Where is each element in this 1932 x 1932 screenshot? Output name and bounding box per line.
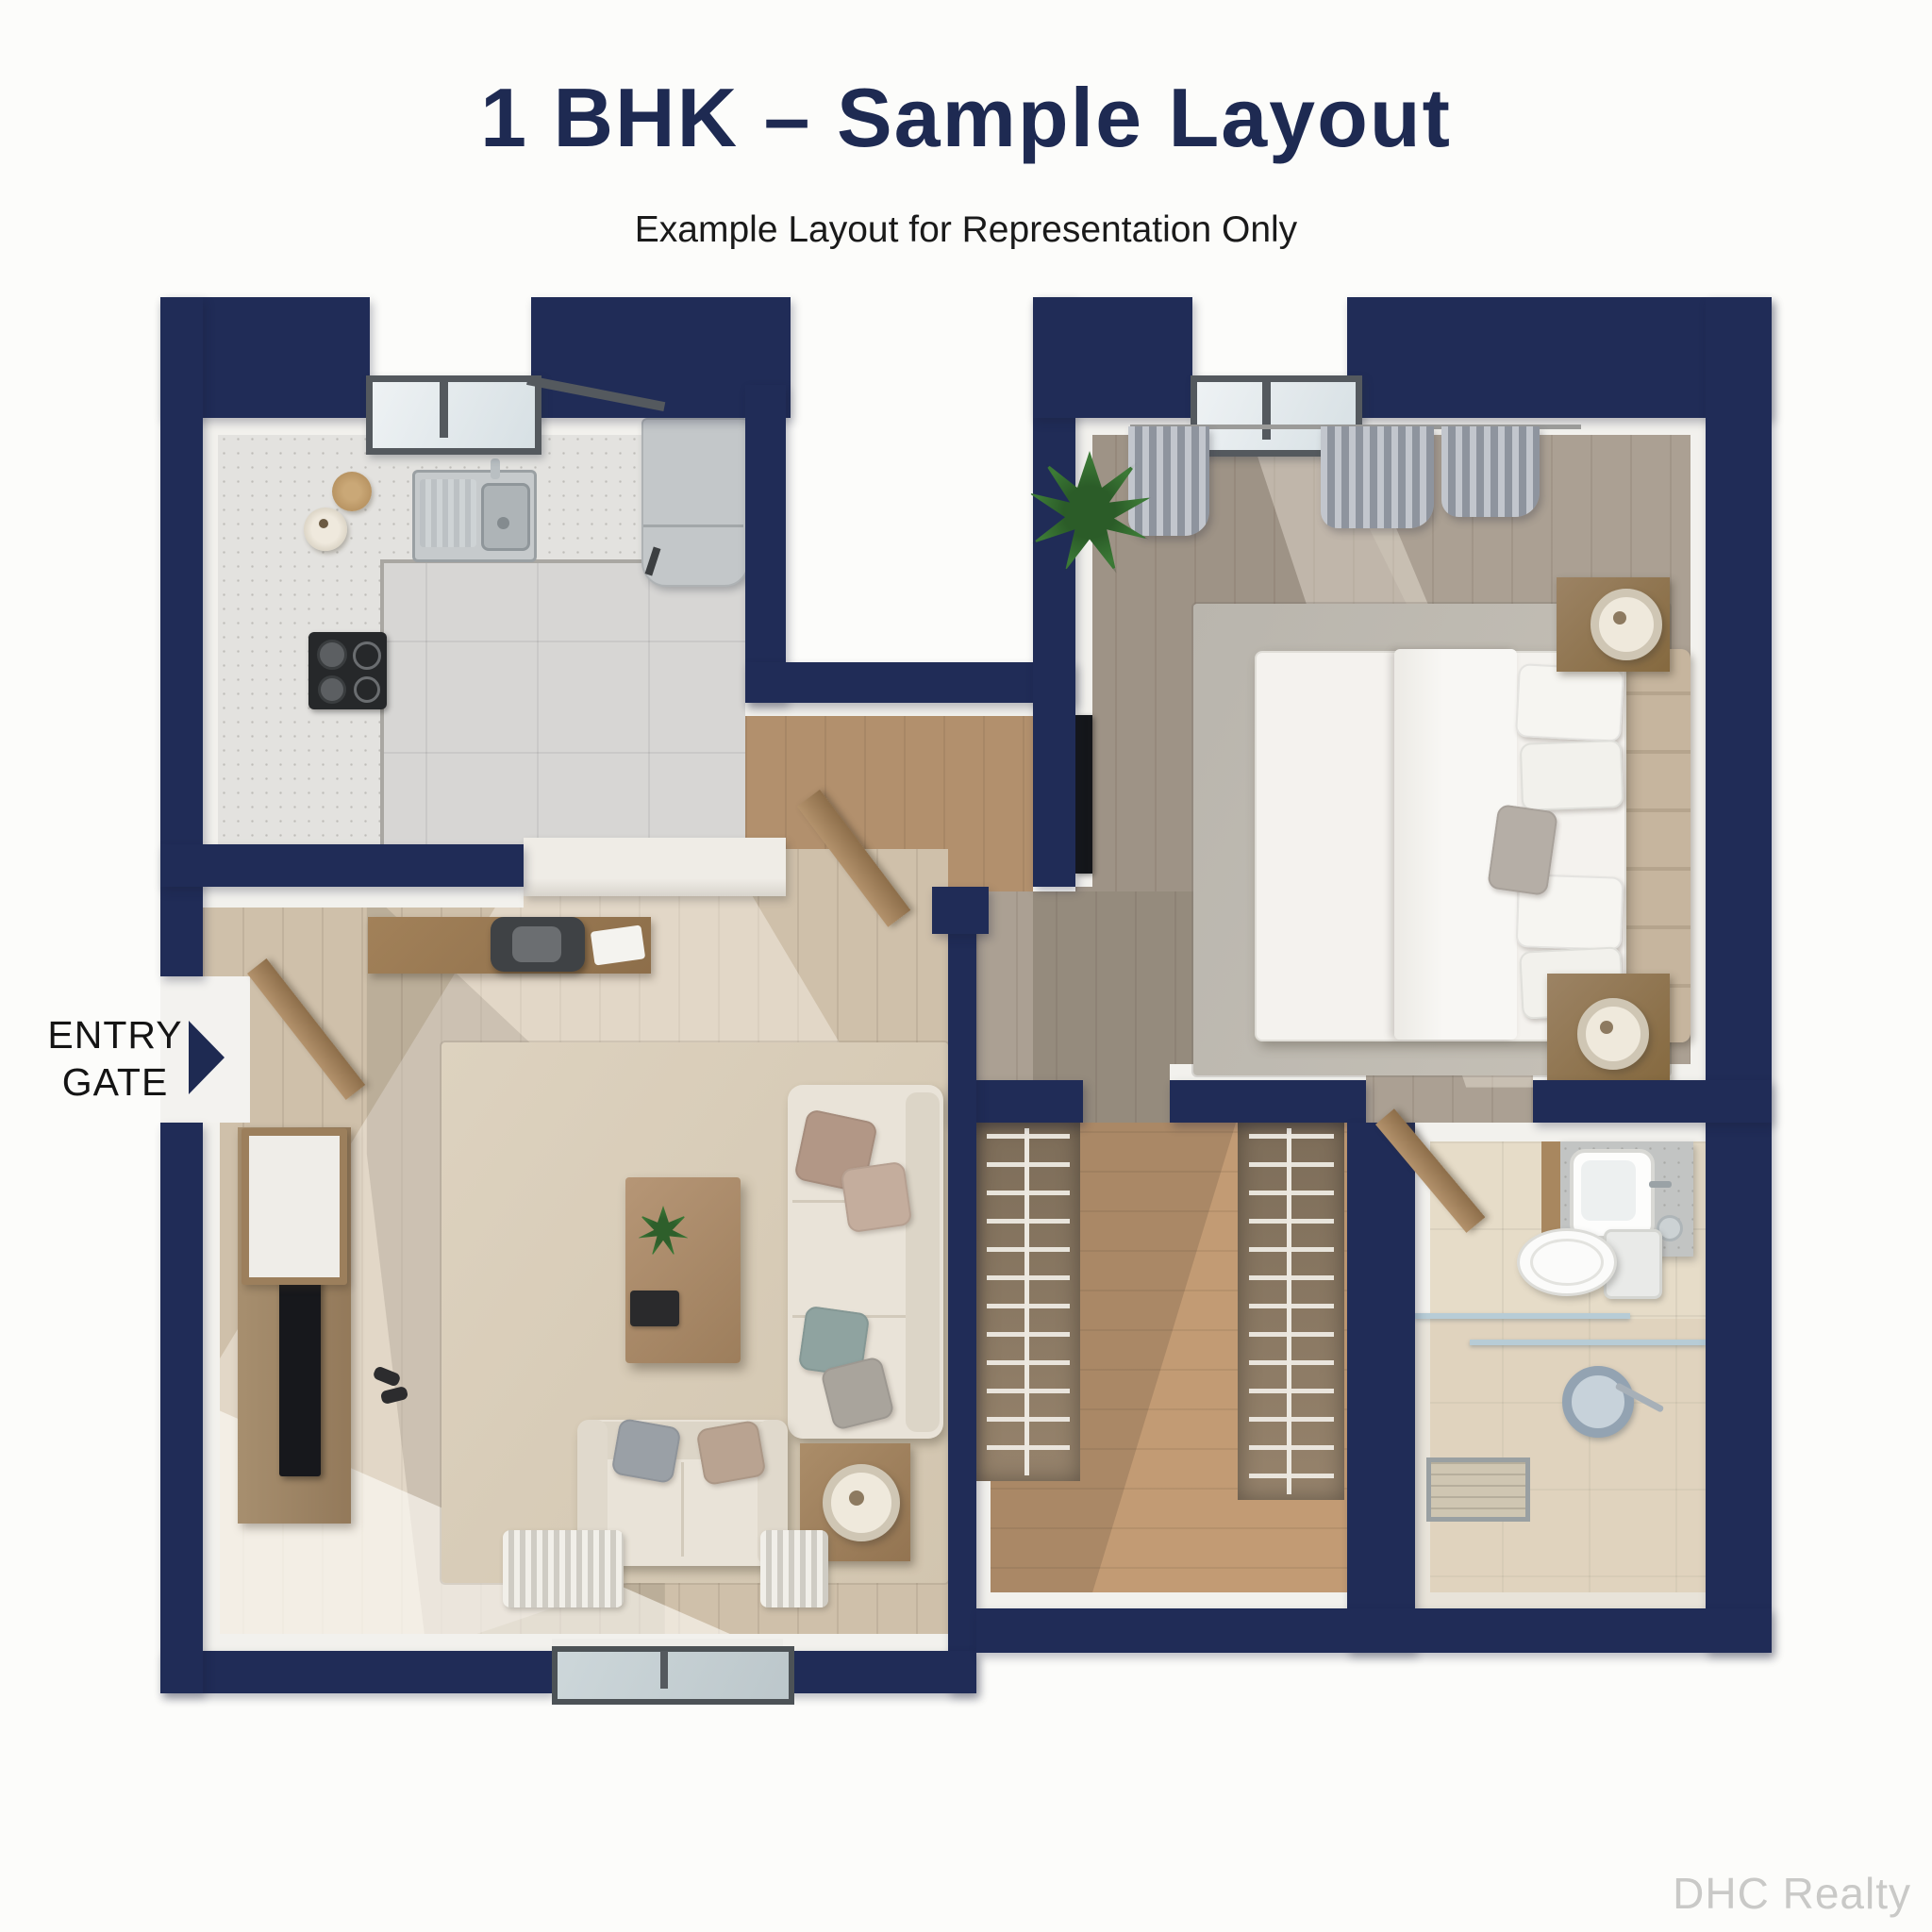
- wall: [160, 844, 524, 887]
- breakfast-counter: [524, 838, 786, 896]
- bed-pillow: [1515, 663, 1624, 742]
- table-tray: [630, 1291, 679, 1326]
- wall: [160, 1123, 203, 1693]
- watermark: DHC Realty: [1673, 1868, 1911, 1919]
- storage-jar: [304, 508, 347, 551]
- desk-paper: [591, 924, 645, 965]
- curtain-stack: [760, 1530, 828, 1607]
- nightstand-lamp: [1577, 998, 1649, 1070]
- toilet-seat-line: [1530, 1239, 1604, 1286]
- lamp-center-icon: [849, 1491, 864, 1506]
- wall-face: [1415, 1123, 1706, 1141]
- refrigerator: [641, 418, 749, 587]
- wardrobe-right-hangers: [1249, 1134, 1334, 1489]
- sofa-pillow: [610, 1418, 681, 1485]
- sink-faucet-icon: [491, 458, 500, 479]
- jar-lid-dot-icon: [319, 519, 328, 528]
- bedroom-curtain: [1128, 426, 1209, 536]
- window-mullion: [1262, 379, 1271, 440]
- bath-faucet-icon: [1649, 1181, 1672, 1188]
- wall-face: [203, 418, 218, 849]
- curtain-stack: [503, 1530, 624, 1607]
- sofa-pillow: [695, 1420, 766, 1487]
- entry-gate-label: ENTRY GATE: [43, 1011, 187, 1106]
- refrigerator-door-line: [643, 525, 743, 527]
- nightstand-lamp: [1591, 589, 1662, 660]
- desk-chair-seat: [512, 926, 561, 962]
- wall: [1706, 297, 1772, 1653]
- lamp-center-icon: [1600, 1021, 1613, 1034]
- wall-face: [745, 703, 1033, 716]
- wall: [976, 1608, 1772, 1653]
- wall-face: [976, 1592, 1373, 1608]
- bed-accent-pillow: [1487, 804, 1558, 896]
- wall: [1533, 1080, 1772, 1123]
- page-subtitle: Example Layout for Representation Only: [0, 209, 1932, 251]
- sofa-seam: [681, 1462, 684, 1557]
- wall: [932, 887, 989, 934]
- sink-drain-icon: [497, 517, 509, 529]
- tv-screen: [279, 1255, 321, 1476]
- coffee-table: [625, 1177, 741, 1363]
- sink-drainboard: [420, 479, 476, 547]
- wall-face: [203, 887, 524, 908]
- wall: [1347, 1123, 1415, 1653]
- wall: [1170, 1080, 1366, 1123]
- bedroom-curtain: [1441, 426, 1540, 517]
- kitchen-window: [366, 375, 541, 455]
- wall: [160, 1651, 552, 1693]
- burner-ring-icon: [354, 676, 380, 703]
- wall: [745, 385, 786, 703]
- burner-ring-icon: [353, 641, 381, 670]
- shoe-cabinet: [241, 1128, 347, 1285]
- living-window: [552, 1646, 794, 1705]
- wall-face: [1690, 418, 1706, 1123]
- hanger-rail-icon: [1024, 1128, 1029, 1475]
- entry-arrow-icon: [189, 1021, 225, 1094]
- bedroom-tv: [1075, 715, 1092, 874]
- hanger-rail-icon: [1287, 1128, 1291, 1494]
- wall: [1033, 297, 1192, 418]
- storage-jar: [332, 472, 372, 511]
- gas-burner-icon: [318, 675, 346, 704]
- bed-blanket: [1255, 638, 1394, 1051]
- wall: [783, 1651, 976, 1693]
- sofa-right-back: [906, 1092, 940, 1432]
- window-mullion: [440, 379, 448, 438]
- shower-glass-panel: [1415, 1313, 1630, 1319]
- lamp-center-icon: [1613, 611, 1626, 625]
- wall: [745, 662, 1075, 703]
- shower-glass-panel: [1470, 1340, 1706, 1345]
- bedroom-curtain: [1321, 426, 1434, 528]
- window-mullion: [660, 1651, 668, 1689]
- wall-face: [203, 1123, 220, 1651]
- page-title: 1 BHK – Sample Layout: [0, 70, 1932, 166]
- floor-plan-page: 1 BHK – Sample Layout Example Layout for…: [0, 0, 1932, 1932]
- gas-burner-icon: [317, 640, 347, 670]
- bed-pillow: [1520, 740, 1624, 811]
- sink-inner: [1581, 1160, 1636, 1221]
- shower-drain: [1426, 1457, 1530, 1522]
- shower-head: [1562, 1366, 1634, 1438]
- wall: [948, 891, 976, 1693]
- sofa-pillow: [841, 1161, 913, 1234]
